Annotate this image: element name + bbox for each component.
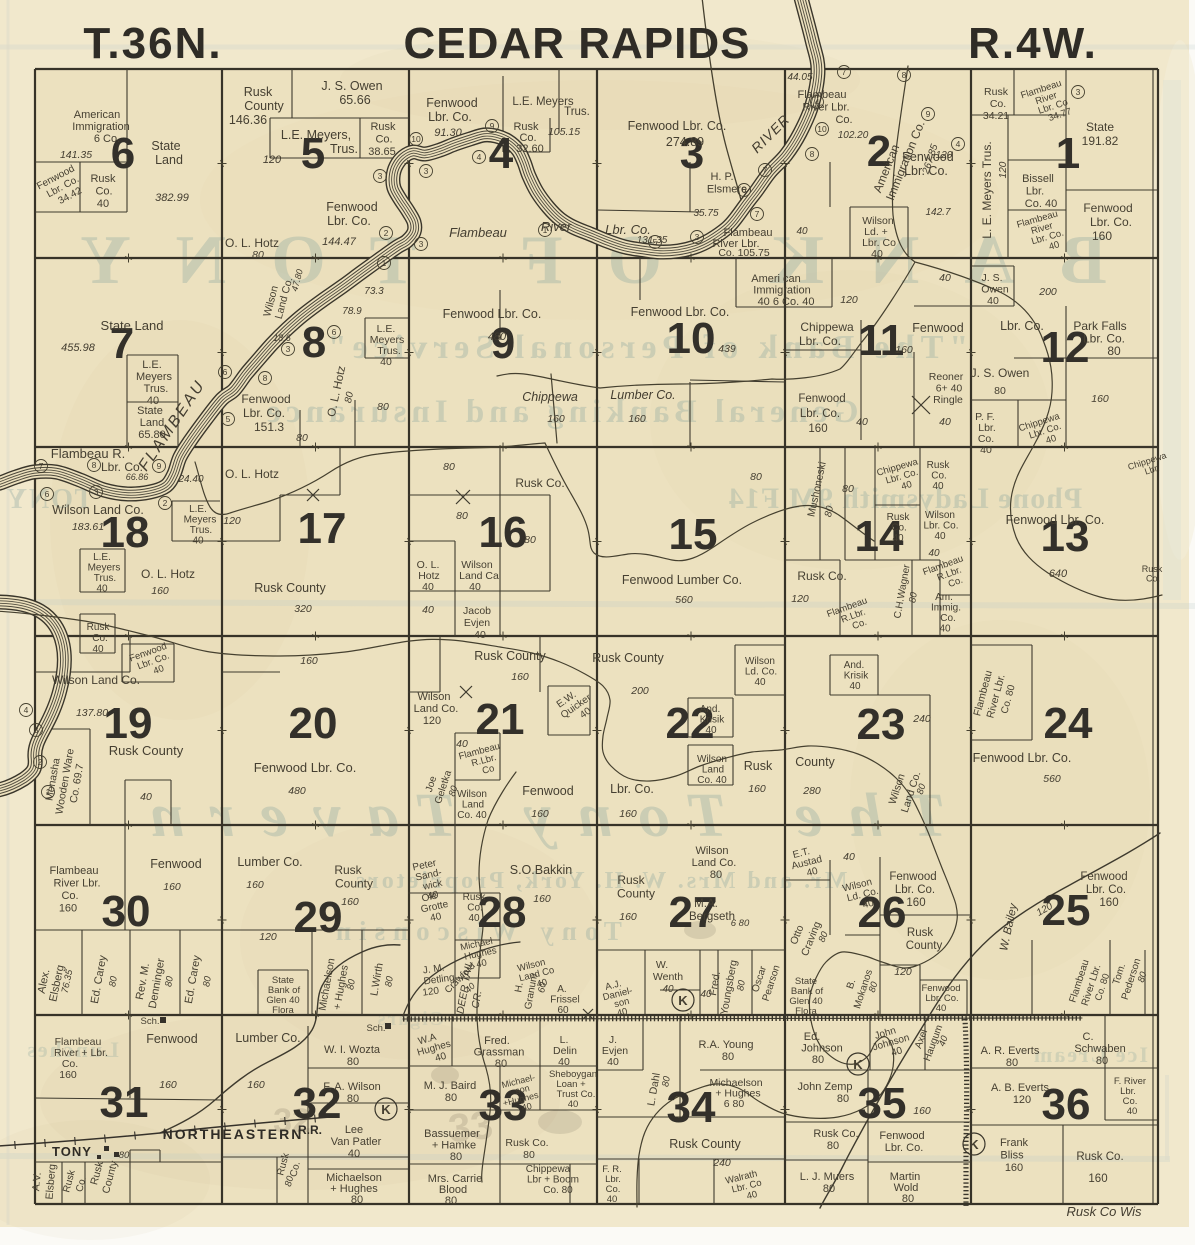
svg-text:County: County (244, 99, 284, 113)
svg-text:Fenwood: Fenwood (522, 784, 573, 798)
svg-text:Co.: Co. (1146, 574, 1160, 584)
svg-text:160: 160 (163, 881, 181, 893)
svg-text:40: 40 (980, 444, 992, 456)
svg-text:80: 80 (823, 1183, 835, 1195)
svg-text:Elsmere: Elsmere (707, 184, 747, 196)
svg-text:Lbr. Co.: Lbr. Co. (327, 214, 371, 228)
svg-text:Co.: Co. (940, 613, 956, 624)
svg-text:Land: Land (462, 800, 484, 811)
svg-text:78.9: 78.9 (342, 306, 362, 317)
svg-text:3: 3 (419, 239, 424, 249)
svg-text:4: 4 (24, 705, 29, 715)
svg-text:80: 80 (377, 401, 389, 413)
svg-text:Jacob: Jacob (463, 605, 491, 617)
svg-text:80: 80 (445, 1092, 457, 1104)
svg-text:3: 3 (286, 344, 291, 354)
svg-text:A.: A. (557, 984, 566, 995)
svg-text:Flora: Flora (272, 1005, 294, 1016)
svg-text:160: 160 (151, 585, 169, 597)
svg-text:A. B. Everts: A. B. Everts (991, 1082, 1050, 1094)
svg-text:Ameri can: Ameri can (751, 273, 801, 285)
svg-text:Immigration: Immigration (72, 121, 129, 133)
svg-text:Sch.: Sch. (366, 1023, 385, 1034)
svg-text:6: 6 (223, 367, 228, 377)
svg-text:80: 80 (524, 534, 536, 546)
svg-text:4: 4 (956, 139, 961, 149)
svg-text:H. P.: H. P. (710, 171, 733, 183)
svg-text:141.35: 141.35 (60, 149, 92, 161)
svg-text:Trus.: Trus. (564, 106, 590, 118)
svg-text:6 80: 6 80 (731, 918, 750, 929)
svg-text:80: 80 (523, 1149, 535, 1161)
svg-text:15: 15 (669, 510, 718, 559)
svg-text:80: 80 (347, 1093, 359, 1105)
svg-text:Wilson Land Co.: Wilson Land Co. (52, 503, 144, 517)
svg-text:40: 40 (843, 851, 855, 863)
svg-text:M. J. Baird: M. J. Baird (424, 1080, 477, 1092)
svg-text:16: 16 (479, 508, 528, 557)
svg-text:80: 80 (119, 1150, 130, 1161)
svg-text:L.E.: L.E. (189, 504, 207, 515)
svg-text:160: 160 (511, 671, 529, 683)
svg-text:21: 21 (476, 695, 525, 744)
svg-text:40: 40 (662, 984, 674, 995)
svg-text:O. L. Hotz: O. L. Hotz (141, 567, 195, 581)
svg-text:480: 480 (288, 785, 306, 797)
svg-text:Trus.: Trus. (94, 573, 116, 584)
svg-text:6+ 40: 6+ 40 (936, 383, 963, 395)
svg-text:Fenwood Lbr. Co.: Fenwood Lbr. Co. (443, 307, 542, 321)
svg-text:80: 80 (296, 432, 308, 444)
svg-text:31: 31 (100, 1078, 149, 1127)
svg-text:Co.: Co. (95, 186, 112, 198)
svg-text:Chippewa: Chippewa (526, 1164, 571, 1175)
svg-text:Rusk Co.: Rusk Co. (515, 476, 564, 490)
svg-text:8: 8 (92, 460, 97, 470)
svg-text:W. I. Wozta: W. I. Wozta (324, 1044, 381, 1056)
svg-text:120: 120 (223, 515, 241, 527)
svg-text:80: 80 (347, 1056, 359, 1068)
svg-text:Meyers: Meyers (184, 515, 217, 526)
svg-text:Rusk: Rusk (617, 873, 645, 887)
svg-text:2: 2 (384, 228, 389, 238)
svg-text:29: 29 (294, 893, 343, 942)
svg-text:Wilson: Wilson (925, 510, 955, 521)
svg-text:120: 120 (263, 154, 282, 166)
svg-text:Rusk Co.: Rusk Co. (1076, 1151, 1123, 1163)
svg-text:R.A. Young: R.A. Young (698, 1039, 753, 1051)
svg-text:40: 40 (568, 1099, 579, 1110)
svg-text:3: 3 (1076, 87, 1081, 97)
svg-text:160: 160 (547, 413, 565, 425)
svg-text:Wilson Land Co.: Wilson Land Co. (52, 673, 140, 687)
svg-text:Bliss: Bliss (1000, 1150, 1024, 1162)
svg-text:6: 6 (45, 489, 50, 499)
svg-text:TONY: TONY (52, 1144, 92, 1159)
svg-text:40: 40 (849, 681, 861, 692)
svg-text:10: 10 (817, 124, 827, 134)
svg-text:Schwaben: Schwaben (1074, 1043, 1125, 1055)
svg-text:160: 160 (895, 344, 913, 356)
svg-text:160: 160 (628, 413, 646, 425)
svg-text:Fenwood: Fenwood (798, 393, 845, 405)
svg-text:7: 7 (842, 67, 847, 77)
svg-text:L.E. Meyers,: L.E. Meyers, (281, 128, 351, 142)
svg-text:80: 80 (450, 1151, 462, 1163)
svg-text:9: 9 (926, 109, 931, 119)
svg-text:34.21: 34.21 (983, 110, 1009, 122)
svg-text:120: 120 (791, 593, 809, 605)
svg-text:455.98: 455.98 (61, 342, 96, 354)
svg-text:160: 160 (247, 1079, 265, 1091)
svg-text:40: 40 (987, 295, 999, 307)
svg-text:Fred.: Fred. (484, 1035, 510, 1047)
svg-text:Rusk County: Rusk County (474, 649, 546, 663)
svg-text:Trus.: Trus. (190, 525, 212, 536)
svg-text:183.61: 183.61 (72, 521, 104, 533)
svg-text:160: 160 (906, 897, 925, 909)
svg-text:Rusk Co Wis: Rusk Co Wis (1066, 1204, 1142, 1219)
svg-text:40: 40 (469, 581, 481, 593)
svg-text:Immigration: Immigration (753, 285, 810, 297)
svg-text:Johnson: Johnson (801, 1043, 843, 1055)
svg-text:C.: C. (1083, 1031, 1094, 1043)
svg-text:40: 40 (456, 738, 468, 750)
svg-text:Lbr + Boom: Lbr + Boom (527, 1175, 579, 1186)
svg-text:Fenwood Lbr. Co.: Fenwood Lbr. Co. (631, 305, 730, 319)
svg-text:80: 80 (710, 869, 722, 881)
svg-text:Bergseth: Bergseth (689, 911, 735, 923)
svg-text:9: 9 (491, 319, 515, 368)
svg-text:Lbr. Co.: Lbr. Co. (428, 110, 472, 124)
svg-text:200: 200 (630, 685, 649, 697)
svg-text:80: 80 (842, 483, 854, 495)
svg-text:137.80: 137.80 (76, 707, 108, 719)
svg-text:3: 3 (34, 725, 39, 735)
svg-text:Lbr. Co.: Lbr. Co. (923, 521, 958, 532)
svg-text:Wilson: Wilson (745, 656, 775, 667)
svg-text:2: 2 (38, 757, 43, 767)
svg-text:120: 120 (259, 931, 277, 943)
svg-text:120: 120 (840, 294, 858, 306)
svg-text:Co.: Co. (931, 471, 947, 482)
svg-text:Krisik: Krisik (844, 671, 869, 682)
svg-text:W.: W. (656, 959, 668, 971)
svg-text:6: 6 (332, 327, 337, 337)
svg-text:160: 160 (59, 1069, 77, 1081)
svg-text:Lbr. Co.: Lbr. Co. (1086, 884, 1126, 896)
svg-text:3: 3 (695, 232, 700, 242)
svg-text:River Lbr.: River Lbr. (802, 102, 849, 114)
svg-text:River: River (541, 219, 572, 234)
svg-text:K: K (853, 1057, 863, 1072)
svg-text:Flambeau: Flambeau (50, 865, 99, 877)
svg-text:23: 23 (857, 700, 906, 749)
svg-text:Rusk: Rusk (87, 622, 111, 633)
svg-text:Fenwood: Fenwood (912, 321, 963, 335)
svg-text:Flambeau R.: Flambeau R. (51, 446, 125, 461)
svg-text:Land: Land (155, 153, 183, 167)
svg-text:160: 160 (300, 655, 318, 667)
svg-text:11: 11 (858, 316, 905, 365)
svg-text:Rusk: Rusk (244, 85, 273, 99)
svg-text:320: 320 (294, 603, 312, 615)
svg-text:Co.: Co. (835, 114, 852, 126)
svg-text:Lumber Co.: Lumber Co. (235, 1031, 300, 1045)
svg-text:Co.: Co. (92, 633, 108, 644)
svg-text:6 Co.: 6 Co. (94, 133, 120, 145)
svg-text:151.3: 151.3 (254, 420, 284, 434)
svg-text:7: 7 (39, 461, 44, 471)
svg-text:160: 160 (619, 808, 637, 820)
svg-text:30: 30 (102, 887, 151, 936)
svg-text:160: 160 (1092, 229, 1112, 243)
svg-text:32.60: 32.60 (516, 143, 544, 155)
svg-text:160: 160 (913, 1105, 931, 1117)
svg-text:Co. 80: Co. 80 (543, 1185, 573, 1196)
svg-text:142.7: 142.7 (925, 207, 950, 218)
svg-text:Sch.: Sch. (140, 1016, 159, 1027)
svg-text:160: 160 (748, 783, 766, 795)
svg-text:20: 20 (289, 699, 338, 748)
svg-text:Fenwood: Fenwood (879, 1130, 924, 1142)
svg-text:160: 160 (1091, 393, 1109, 405)
svg-text:40: 40 (468, 913, 480, 924)
svg-text:120: 120 (894, 966, 912, 978)
svg-text:105.15: 105.15 (548, 126, 580, 138)
svg-text:Wenth: Wenth (653, 971, 683, 983)
svg-text:7: 7 (755, 209, 760, 219)
svg-text:131.35: 131.35 (637, 235, 668, 246)
svg-text:Co. 105.75: Co. 105.75 (718, 247, 770, 259)
svg-text:24.40: 24.40 (177, 474, 203, 485)
svg-text:J. S.: J. S. (981, 272, 1002, 284)
svg-text:Rusk County: Rusk County (592, 651, 664, 665)
svg-text:J. S. Owen: J. S. Owen (321, 79, 382, 93)
svg-text:7: 7 (763, 165, 768, 175)
svg-text:560: 560 (675, 594, 693, 606)
svg-text:Co. 40: Co. 40 (1025, 198, 1057, 210)
svg-text:3: 3 (378, 171, 383, 181)
svg-text:Chippewa: Chippewa (800, 320, 854, 334)
svg-text:Flambeau: Flambeau (449, 225, 507, 240)
svg-text:Fenwood: Fenwood (241, 392, 290, 406)
svg-text:Immig.: Immig. (931, 603, 961, 614)
svg-text:40: 40 (871, 248, 883, 260)
svg-text:200: 200 (1038, 286, 1057, 298)
svg-text:120: 120 (1013, 1094, 1031, 1106)
svg-text:160: 160 (808, 423, 827, 435)
svg-text:80: 80 (1006, 1057, 1018, 1069)
svg-text:8: 8 (902, 70, 907, 80)
svg-text:40 6 Co. 40: 40 6 Co. 40 (758, 296, 815, 308)
svg-text:A.V.: A.V. (30, 1172, 44, 1192)
svg-text:10: 10 (667, 314, 716, 363)
svg-text:40: 40 (939, 272, 951, 284)
svg-text:Rusk: Rusk (744, 759, 773, 773)
svg-text:40: 40 (705, 725, 717, 736)
svg-text:8: 8 (810, 149, 815, 159)
svg-text:Trus.: Trus. (330, 142, 358, 156)
svg-text:120: 120 (998, 161, 1009, 178)
svg-text:State: State (137, 405, 163, 417)
svg-text:80: 80 (1107, 344, 1121, 358)
svg-text:Fenwood: Fenwood (426, 96, 477, 110)
svg-text:State Land: State Land (101, 318, 164, 333)
svg-text:91.30: 91.30 (434, 127, 462, 139)
svg-text:Land Co.: Land Co. (414, 703, 459, 715)
svg-text:40: 40 (192, 536, 204, 547)
svg-text:Wilson: Wilson (417, 691, 450, 703)
svg-text:Frissel: Frissel (550, 995, 579, 1006)
svg-text:T.36N.: T.36N. (83, 19, 222, 68)
svg-text:80: 80 (722, 1051, 734, 1063)
svg-text:Lbr. Co.: Lbr. Co. (800, 408, 840, 420)
svg-text:480: 480 (488, 331, 507, 343)
svg-text:Meyers: Meyers (136, 371, 173, 383)
svg-text:40: 40 (939, 624, 951, 635)
svg-text:County: County (795, 755, 835, 769)
svg-text:Lee: Lee (345, 1124, 363, 1136)
svg-text:Land Co.: Land Co. (692, 857, 737, 869)
svg-text:40: 40 (96, 584, 108, 595)
svg-text:80: 80 (443, 461, 455, 473)
svg-text:F. A. Wilson: F. A. Wilson (323, 1081, 380, 1093)
svg-text:35: 35 (858, 1079, 907, 1128)
svg-text:Rusk: Rusk (1142, 564, 1163, 574)
svg-text:Co.: Co. (61, 890, 78, 902)
svg-text:Rusk Co.: Rusk Co. (813, 1128, 858, 1140)
svg-text:160: 160 (341, 896, 359, 908)
svg-text:J. S. Owen: J. S. Owen (971, 366, 1030, 380)
svg-text:Rusk: Rusk (90, 173, 116, 185)
svg-text:191.82: 191.82 (1082, 134, 1119, 148)
svg-text:40: 40 (754, 677, 766, 688)
svg-text:Fenwood: Fenwood (326, 200, 377, 214)
svg-text:River Lbr.: River Lbr. (53, 878, 100, 890)
svg-text:240: 240 (912, 713, 931, 725)
svg-text:8: 8 (263, 373, 268, 383)
svg-text:Lbr. Co.: Lbr. Co. (799, 334, 841, 348)
svg-text:73.3: 73.3 (364, 286, 384, 297)
svg-text:160: 160 (531, 808, 549, 820)
svg-text:34: 34 (667, 1083, 716, 1132)
svg-text:274.89: 274.89 (666, 135, 704, 149)
svg-text:Flora: Flora (795, 1006, 817, 1017)
svg-text:40: 40 (348, 1148, 360, 1160)
svg-text:K: K (678, 993, 688, 1008)
svg-text:146.36: 146.36 (229, 113, 267, 127)
svg-text:439: 439 (718, 343, 736, 355)
svg-text:Rusk County: Rusk County (254, 581, 326, 595)
svg-text:Reoner: Reoner (929, 371, 964, 383)
svg-text:19: 19 (104, 699, 153, 748)
svg-text:80: 80 (750, 471, 762, 483)
svg-text:40: 40 (97, 198, 109, 210)
svg-text:Rusk County: Rusk County (109, 743, 184, 758)
svg-text:Lumber Co.: Lumber Co. (237, 855, 302, 869)
svg-text:County: County (335, 877, 373, 891)
svg-text:40: 40 (939, 416, 951, 428)
svg-text:Evjen: Evjen (464, 617, 490, 629)
svg-text:2: 2 (163, 498, 168, 508)
svg-text:24: 24 (1044, 699, 1093, 748)
svg-text:Rusk: Rusk (887, 512, 911, 523)
svg-text:18.6: 18.6 (273, 333, 291, 343)
svg-text:Ed.: Ed. (804, 1031, 821, 1043)
svg-text:40: 40 (796, 226, 808, 237)
svg-text:Rusk County: Rusk County (669, 1137, 741, 1151)
svg-text:And.: And. (844, 660, 865, 671)
svg-text:80: 80 (902, 1193, 914, 1205)
svg-text:17: 17 (298, 504, 347, 553)
svg-text:Fenwood: Fenwood (150, 857, 201, 871)
svg-text:560: 560 (1043, 773, 1061, 785)
svg-text:160: 160 (619, 911, 637, 923)
svg-text:144.47: 144.47 (322, 236, 357, 248)
svg-text:40: 40 (140, 791, 152, 803)
svg-text:Meyers: Meyers (88, 563, 121, 574)
svg-text:40: 40 (92, 644, 104, 655)
svg-text:Rusk Co.: Rusk Co. (797, 569, 846, 583)
svg-text:Co.: Co. (990, 98, 1006, 110)
svg-text:Owen: Owen (981, 284, 1009, 296)
svg-text:State: State (151, 139, 180, 153)
svg-text:L. J. Muers: L. J. Muers (800, 1171, 855, 1183)
svg-text:40: 40 (928, 548, 940, 559)
svg-text:M.A.: M.A. (694, 898, 718, 910)
svg-text:35.75: 35.75 (693, 208, 718, 219)
svg-text:And.: And. (700, 704, 721, 715)
svg-text:K: K (969, 1137, 979, 1152)
svg-text:160: 160 (1005, 1162, 1023, 1174)
svg-text:160: 160 (1099, 897, 1118, 909)
svg-text:280: 280 (802, 785, 821, 797)
svg-text:R.R.: R.R. (298, 1123, 322, 1137)
svg-text:American: American (74, 109, 120, 121)
svg-text:40: 40 (934, 531, 946, 542)
svg-text:Wilson: Wilson (697, 754, 727, 765)
svg-text:Co.: Co. (467, 903, 483, 914)
svg-text:Fenwood: Fenwood (1083, 201, 1132, 215)
svg-text:382.99: 382.99 (155, 192, 189, 204)
svg-text:Lumber Co.: Lumber Co. (610, 388, 675, 402)
svg-text:CEDAR RAPIDS: CEDAR RAPIDS (404, 19, 751, 68)
svg-text:3: 3 (94, 487, 99, 497)
svg-text:5: 5 (226, 414, 231, 424)
svg-text:Ringle: Ringle (933, 394, 963, 406)
svg-text:80: 80 (445, 1195, 457, 1207)
svg-text:40: 40 (936, 1003, 947, 1014)
svg-text:Rusk: Rusk (927, 460, 951, 471)
svg-text:Rusk: Rusk (463, 892, 487, 903)
svg-text:80: 80 (456, 510, 468, 522)
svg-text:Fenwood Lumber Co.: Fenwood Lumber Co. (622, 573, 742, 587)
svg-text:Chippewa: Chippewa (522, 390, 578, 404)
svg-text:80: 80 (252, 249, 264, 261)
svg-text:40: 40 (932, 481, 944, 492)
svg-text:60: 60 (557, 1005, 569, 1016)
svg-text:Fenwood: Fenwood (146, 1032, 197, 1046)
svg-text:65.66: 65.66 (339, 93, 370, 107)
svg-text:80: 80 (495, 1058, 507, 1070)
svg-text:County: County (906, 940, 943, 952)
svg-text:Co. 40: Co. 40 (697, 775, 727, 786)
svg-text:Land: Land (702, 765, 724, 776)
svg-text:Co.: Co. (375, 134, 392, 146)
svg-text:K: K (381, 1102, 391, 1117)
svg-text:1: 1 (382, 258, 387, 268)
